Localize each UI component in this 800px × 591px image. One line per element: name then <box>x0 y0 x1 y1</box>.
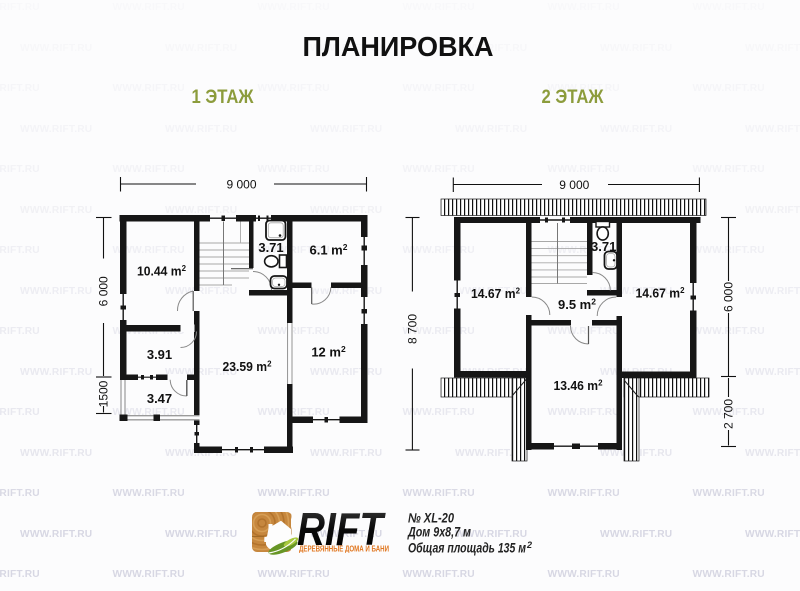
svg-text:2 700: 2 700 <box>722 399 736 429</box>
svg-text:23.59 m2: 23.59 m2 <box>223 359 272 375</box>
svg-text:Дом 9х8,7 м: Дом 9х8,7 м <box>407 525 471 540</box>
svg-text:13.46 m2: 13.46 m2 <box>554 378 603 394</box>
svg-text:6.1 m2: 6.1 m2 <box>310 242 348 258</box>
svg-text:6 000: 6 000 <box>97 276 111 306</box>
svg-text:3.71: 3.71 <box>258 240 283 255</box>
svg-text:10.44 m2: 10.44 m2 <box>137 263 186 279</box>
svg-text:14.67 m2: 14.67 m2 <box>636 285 685 301</box>
svg-text:14.67 m2: 14.67 m2 <box>471 286 520 302</box>
svg-text:2 ЭТАЖ: 2 ЭТАЖ <box>542 87 605 108</box>
svg-text:№ XL-20: № XL-20 <box>408 511 454 526</box>
svg-text:12 m2: 12 m2 <box>311 344 346 360</box>
svg-text:2: 2 <box>526 540 532 550</box>
svg-text:Общая площадь 135 м: Общая площадь 135 м <box>408 541 526 556</box>
svg-text:8 700: 8 700 <box>406 314 420 344</box>
svg-text:9 000: 9 000 <box>559 178 589 192</box>
svg-text:1500: 1500 <box>97 380 111 407</box>
svg-text:3.91: 3.91 <box>147 347 172 362</box>
svg-text:1 ЭТАЖ: 1 ЭТАЖ <box>192 87 255 108</box>
svg-text:3.47: 3.47 <box>147 391 172 406</box>
svg-text:ДЕРЕВЯННЫЕ ДОМА И БАНИ: ДЕРЕВЯННЫЕ ДОМА И БАНИ <box>299 545 389 554</box>
svg-text:6 000: 6 000 <box>722 282 736 312</box>
svg-text:3.71: 3.71 <box>591 239 616 254</box>
svg-text:ПЛАНИРОВКА: ПЛАНИРОВКА <box>303 31 494 62</box>
svg-text:9.5 m2: 9.5 m2 <box>558 297 596 313</box>
svg-text:9 000: 9 000 <box>226 178 256 192</box>
